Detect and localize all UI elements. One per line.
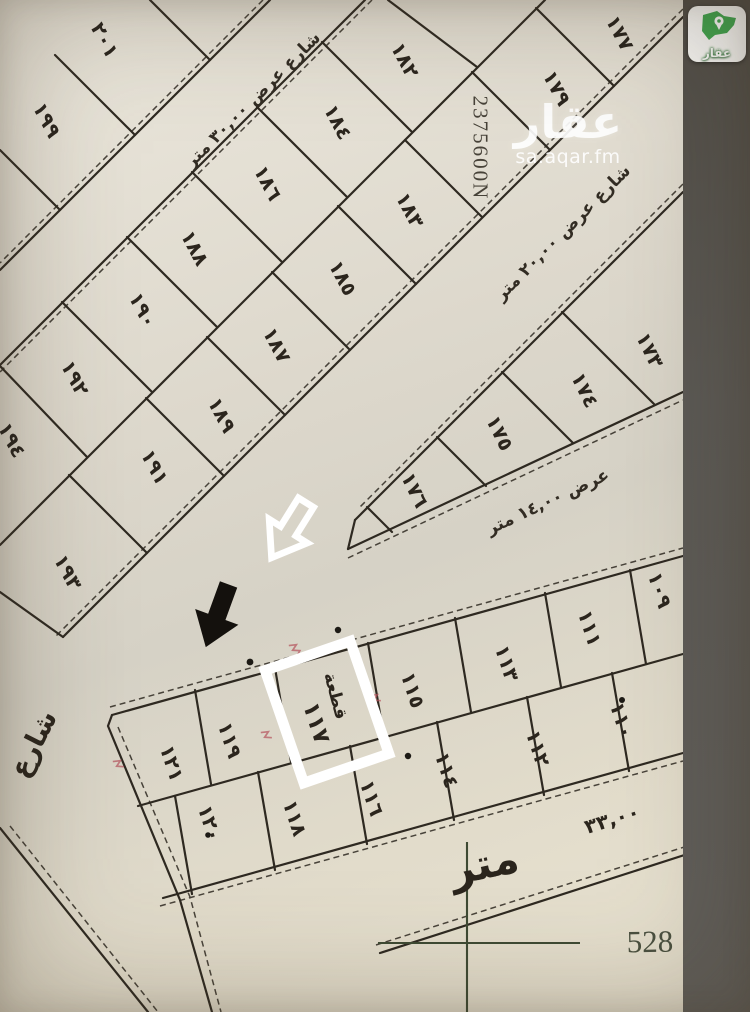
photo-edge-band <box>683 0 750 1012</box>
aqar-map-photo: 2375600N 528 متر ٣٣,٠٠ شارع قطعة ١١٧ عقا… <box>0 0 750 1012</box>
aqar-logo[interactable]: عقار <box>688 6 746 62</box>
survey-map-lines <box>0 0 750 1012</box>
street-dashed-lines <box>0 0 700 1012</box>
aqar-logo-text: عقار <box>703 47 731 59</box>
saudi-map-pin-icon <box>696 10 738 46</box>
easting-coordinate-label: 528 <box>626 924 673 961</box>
white-arrow-icon <box>253 491 325 570</box>
parcel-lines <box>0 0 700 1012</box>
black-arrow-icon <box>184 577 250 655</box>
northing-coordinate-label: 2375600N <box>468 96 493 201</box>
